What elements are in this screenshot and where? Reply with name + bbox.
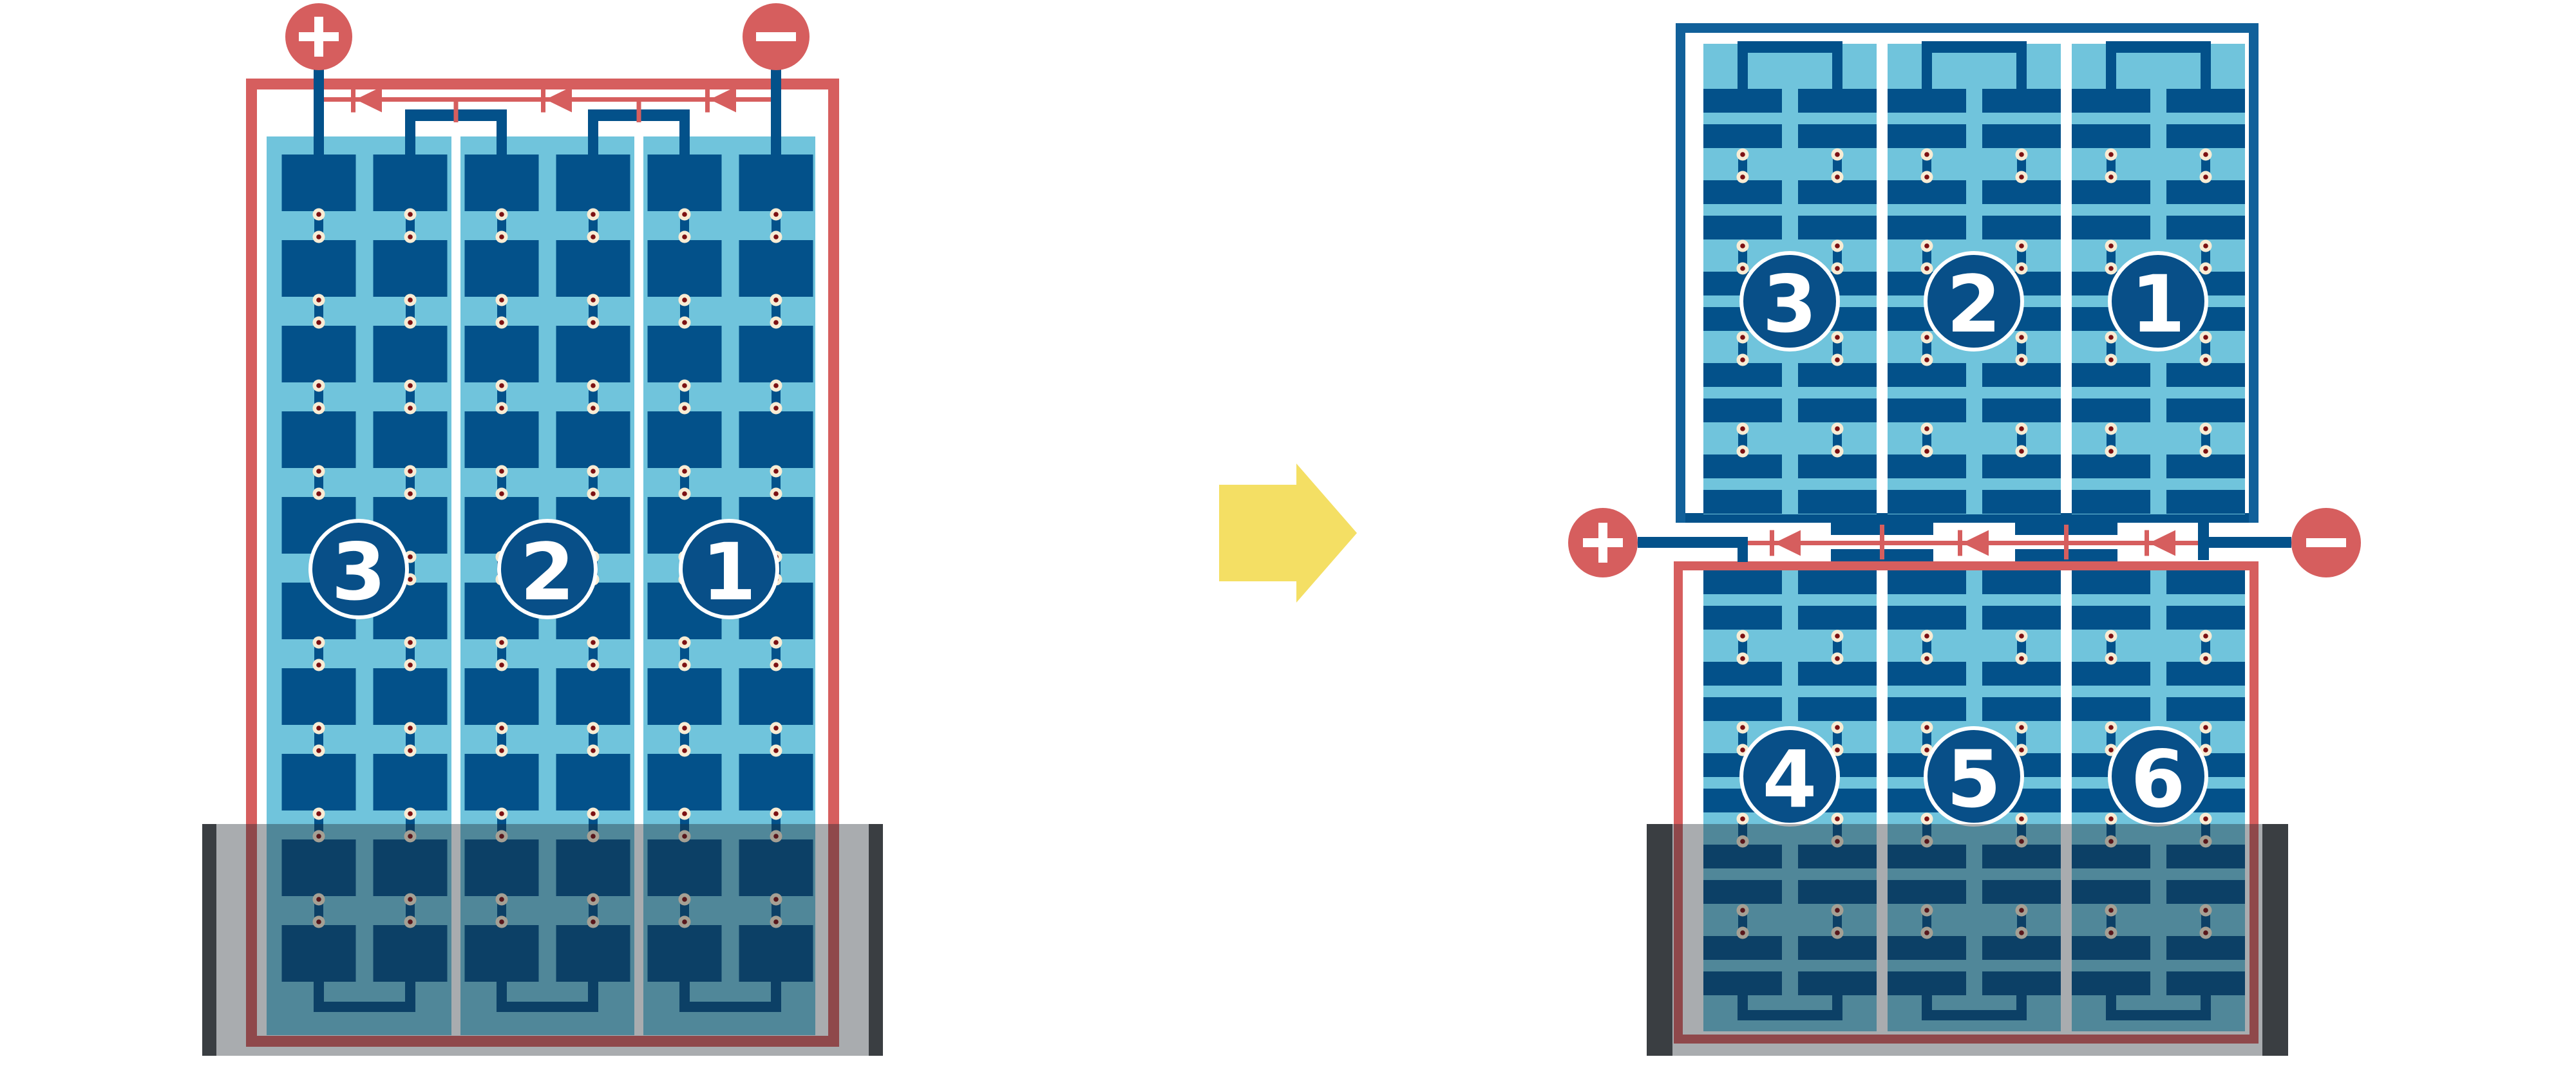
string-number-label: 3 — [332, 527, 386, 618]
half-cut-cell — [1888, 398, 1966, 422]
half-cut-cell — [1888, 216, 1966, 239]
solder-dot-core — [499, 662, 504, 668]
half-cut-cell — [1703, 89, 1782, 113]
half-cut-cell — [2166, 662, 2245, 686]
solar-cell — [648, 668, 722, 725]
half-cut-cell — [1703, 363, 1782, 387]
minus-icon — [2306, 538, 2346, 547]
solder-dot-core — [591, 406, 596, 411]
solder-dot-core — [2108, 335, 2114, 340]
solder-dot-core — [2203, 426, 2208, 431]
solder-dot-core — [591, 491, 596, 496]
half-cut-cell — [2166, 124, 2245, 148]
half-cut-cell — [1982, 124, 2061, 148]
solder-dot-core — [2203, 633, 2208, 639]
solder-dot-core — [1835, 747, 1840, 753]
solar-cell — [648, 411, 722, 468]
half-cut-cell — [1982, 662, 2061, 686]
solder-dot-core — [316, 383, 321, 388]
solder-dot-core — [2019, 816, 2024, 821]
solar-cell — [556, 754, 630, 810]
solder-dot-core — [499, 406, 504, 411]
string-top-connector — [2016, 53, 2027, 89]
solar-cell — [465, 326, 539, 382]
half-cut-cell — [1703, 454, 1782, 478]
half-cut-cell — [2072, 454, 2150, 478]
solder-dot-core — [499, 383, 504, 388]
solder-dot-core — [2019, 426, 2024, 431]
solder-dot-core — [499, 811, 504, 816]
solder-dot-core — [1924, 152, 1929, 157]
solar-cell — [374, 411, 448, 468]
positive-lead-wire — [314, 69, 324, 155]
solar-cell — [282, 411, 356, 468]
solder-dot-core — [2108, 266, 2114, 271]
solder-dot-core — [2203, 152, 2208, 157]
shadow-edge-bar — [2262, 824, 2288, 1056]
half-cut-cell — [1982, 180, 2061, 204]
string-top-connector — [2106, 41, 2211, 53]
solder-dot-core — [2019, 243, 2024, 248]
half-cut-cell — [1703, 124, 1782, 148]
string-number-label: 5 — [1947, 734, 2002, 825]
solder-dot-core — [773, 234, 779, 239]
solder-dot-core — [773, 469, 779, 474]
string-number-label: 4 — [1763, 734, 1817, 825]
solder-dot-core — [408, 640, 413, 645]
half-cut-cell — [2166, 363, 2245, 387]
solder-dot-core — [2019, 656, 2024, 661]
solder-dot-core — [2019, 335, 2024, 340]
solder-dot-core — [1835, 449, 1840, 454]
solder-dot-core — [2019, 747, 2024, 753]
bypass-diode-icon — [355, 87, 382, 113]
string-top-connector — [1738, 41, 1842, 53]
half-cut-cell — [1798, 570, 1877, 594]
diode-cathode-bar — [705, 87, 710, 113]
solder-dot-core — [2108, 725, 2114, 730]
solar-cell — [556, 240, 630, 297]
half-cut-cell — [1888, 570, 1966, 594]
half-cut-cell — [1703, 398, 1782, 422]
solar-cell — [374, 326, 448, 382]
solar-cell — [556, 326, 630, 382]
solder-dot-core — [1740, 426, 1745, 431]
half-cut-cell — [1703, 180, 1782, 204]
solder-dot-core — [591, 662, 596, 668]
half-cut-cell — [1703, 697, 1782, 721]
solder-dot-core — [408, 212, 413, 217]
half-cut-cell — [2166, 216, 2245, 239]
negative-lead-wire — [771, 69, 781, 155]
solder-dot-core — [316, 748, 321, 753]
half-cut-cell — [2166, 454, 2245, 478]
solder-dot-core — [316, 640, 321, 645]
solar-cell — [374, 754, 448, 810]
solder-dot-core — [2019, 725, 2024, 730]
diode-cathode-bar — [541, 87, 545, 113]
solder-dot-core — [2203, 747, 2208, 753]
half-cut-cell — [1798, 490, 1877, 514]
half-cut-cell — [1982, 570, 2061, 594]
solder-dot-core — [591, 748, 596, 753]
half-cut-cell — [2072, 216, 2150, 239]
half-cut-cell — [1798, 398, 1877, 422]
shadow-edge-bar — [1647, 824, 1672, 1056]
solar-cell — [465, 411, 539, 468]
solder-dot-core — [682, 491, 687, 496]
solder-dot-core — [1924, 335, 1929, 340]
solder-dot-core — [1924, 633, 1929, 639]
solar-cell — [282, 155, 356, 211]
solar-cell — [739, 668, 813, 725]
half-cut-cell — [1798, 662, 1877, 686]
solder-dot-core — [1924, 747, 1929, 753]
solder-dot-core — [2203, 243, 2208, 248]
half-cut-cell — [2072, 697, 2150, 721]
solder-dot-core — [408, 406, 413, 411]
solder-dot-core — [2108, 152, 2114, 157]
solder-dot-core — [408, 577, 413, 582]
solder-dot-core — [2108, 357, 2114, 362]
solar-cell — [739, 754, 813, 810]
half-cut-cell — [1888, 89, 1966, 113]
half-cut-cell — [2072, 124, 2150, 148]
half-cut-cell — [2072, 570, 2150, 594]
solar-cell — [648, 326, 722, 382]
solar-cell — [282, 754, 356, 810]
solder-dot-core — [499, 469, 504, 474]
solder-dot-core — [408, 748, 413, 753]
solder-dot-core — [2019, 174, 2024, 180]
solder-dot-core — [499, 640, 504, 645]
solder-dot-core — [316, 469, 321, 474]
solder-dot-core — [1924, 816, 1929, 821]
solder-dot-core — [682, 383, 687, 388]
half-cut-cell — [2166, 697, 2245, 721]
solder-dot-core — [1835, 152, 1840, 157]
pv-module-shading-diagram: 321 321 456 — [0, 0, 2576, 1068]
solder-dot-core — [499, 320, 504, 325]
solder-dot-core — [1835, 357, 1840, 362]
solder-dot-core — [682, 726, 687, 731]
solder-dot-core — [316, 320, 321, 325]
solder-dot-core — [773, 406, 779, 411]
solder-dot-core — [2108, 449, 2114, 454]
half-cut-cell — [2072, 180, 2150, 204]
solder-dot-core — [2019, 357, 2024, 362]
solder-dot-core — [2019, 266, 2024, 271]
negative-lead-wire — [2198, 523, 2209, 560]
solder-dot-core — [2203, 266, 2208, 271]
half-cut-cell — [2072, 606, 2150, 630]
half-cut-cell — [1703, 216, 1782, 239]
solder-dot-core — [316, 662, 321, 668]
solder-dot-core — [773, 491, 779, 496]
solder-dot-core — [2203, 725, 2208, 730]
solar-cell — [374, 155, 448, 211]
solder-dot-core — [1740, 335, 1745, 340]
solder-dot-core — [2203, 357, 2208, 362]
solder-dot-core — [316, 811, 321, 816]
half-cut-cell — [1982, 606, 2061, 630]
half-cut-cell — [2166, 180, 2245, 204]
half-cut-cell — [1798, 180, 1877, 204]
half-cut-cell — [1888, 180, 1966, 204]
solder-dot-core — [1740, 747, 1745, 753]
half-cut-cell — [2166, 89, 2245, 113]
half-cut-cell — [1982, 216, 2061, 239]
solder-dot-core — [2203, 656, 2208, 661]
solder-dot-core — [408, 297, 413, 303]
solder-dot-core — [408, 811, 413, 816]
solder-dot-core — [1924, 426, 1929, 431]
solder-dot-core — [591, 383, 596, 388]
solder-dot-core — [1740, 656, 1745, 661]
half-cut-cell — [1982, 454, 2061, 478]
string-top-connector — [2106, 53, 2116, 89]
solder-dot-core — [2203, 174, 2208, 180]
solder-dot-core — [408, 726, 413, 731]
half-cut-cell — [2072, 89, 2150, 113]
solder-dot-core — [2108, 656, 2114, 661]
half-cut-cell — [1888, 490, 1966, 514]
solder-dot-core — [1924, 656, 1929, 661]
solder-dot-core — [1740, 152, 1745, 157]
string-top-connector — [2201, 53, 2211, 89]
solder-dot-core — [2203, 335, 2208, 340]
solder-dot-core — [1835, 816, 1840, 821]
minus-icon — [756, 32, 796, 41]
solder-dot-core — [773, 297, 779, 303]
solder-dot-core — [682, 748, 687, 753]
plus-icon — [314, 17, 323, 57]
half-cut-cell — [1703, 662, 1782, 686]
shadow-overlay-left — [202, 824, 883, 1056]
solder-dot-core — [2108, 174, 2114, 180]
solar-cell — [556, 411, 630, 468]
positive-lead-wire — [1738, 548, 1748, 562]
arrow-right-icon — [1219, 485, 1296, 581]
solar-cell — [374, 668, 448, 725]
string-number-label: 1 — [2131, 259, 2186, 350]
solar-cell — [739, 326, 813, 382]
diode-cathode-bar — [351, 87, 355, 113]
solder-dot-core — [1740, 449, 1745, 454]
solder-dot-core — [408, 234, 413, 239]
solder-dot-core — [408, 469, 413, 474]
solar-cell — [556, 155, 630, 211]
solder-dot-core — [1740, 816, 1745, 821]
solder-dot-core — [2108, 816, 2114, 821]
bypass-diode-icon — [1774, 530, 1801, 556]
solar-cell — [739, 411, 813, 468]
diode-bus-tap — [454, 97, 459, 122]
bottom-busbar — [1685, 513, 2249, 523]
solder-dot-core — [1835, 633, 1840, 639]
transform-arrow — [1219, 464, 1357, 603]
string-number-label: 1 — [702, 527, 757, 618]
half-cut-cell — [1703, 490, 1782, 514]
solar-cell — [739, 155, 813, 211]
solder-dot-core — [1835, 656, 1840, 661]
negative-lead-wire — [2209, 537, 2291, 548]
solder-dot-core — [1740, 725, 1745, 730]
half-cut-cell — [1798, 454, 1877, 478]
string-top-connector — [1922, 41, 2027, 53]
string-top-connector — [1922, 53, 1932, 89]
solder-dot-core — [2019, 152, 2024, 157]
half-cut-cell — [2072, 398, 2150, 422]
solar-cell — [282, 240, 356, 297]
solder-dot-core — [1835, 174, 1840, 180]
solder-dot-core — [316, 212, 321, 217]
plus-icon — [1598, 523, 1607, 563]
solder-dot-core — [2108, 747, 2114, 753]
half-cut-cell — [1798, 216, 1877, 239]
solder-dot-core — [773, 811, 779, 816]
half-cut-cell — [1888, 697, 1966, 721]
string-top-connector — [1832, 53, 1842, 89]
half-cut-cell — [2072, 363, 2150, 387]
half-cut-cell — [1703, 606, 1782, 630]
half-cut-cell — [1982, 697, 2061, 721]
solder-dot-core — [773, 320, 779, 325]
solder-dot-core — [2108, 426, 2114, 431]
solder-dot-core — [316, 726, 321, 731]
half-cut-cell — [2166, 570, 2245, 594]
shadow-overlays — [202, 824, 2288, 1056]
solar-cell — [648, 754, 722, 810]
solder-dot-core — [316, 234, 321, 239]
solder-dot-core — [499, 212, 504, 217]
solder-dot-core — [591, 640, 596, 645]
bypass-diode-bus — [324, 87, 771, 123]
solar-cell — [739, 240, 813, 297]
solder-dot-core — [682, 640, 687, 645]
diagram-canvas: 321 321 456 — [0, 0, 2576, 1068]
half-cut-cell — [1798, 89, 1877, 113]
solder-dot-core — [1924, 357, 1929, 362]
solar-cell — [465, 155, 539, 211]
half-cut-cell — [2166, 606, 2245, 630]
solder-dot-core — [591, 811, 596, 816]
bypass-diode-icon — [545, 87, 572, 113]
solder-dot-core — [2108, 633, 2114, 639]
solder-dot-core — [682, 662, 687, 668]
solder-dot-core — [682, 297, 687, 303]
shadow-edge-bar — [869, 824, 883, 1056]
solder-dot-core — [2019, 633, 2024, 639]
solder-dot-core — [408, 662, 413, 668]
solder-dot-core — [499, 748, 504, 753]
shadow-edge-bar — [202, 824, 216, 1056]
solar-cell — [465, 240, 539, 297]
string-number-label: 2 — [520, 527, 575, 618]
solder-dot-core — [1924, 243, 1929, 248]
solder-dot-core — [1740, 633, 1745, 639]
solder-dot-core — [682, 234, 687, 239]
solder-dot-core — [1740, 174, 1745, 180]
solar-cell — [465, 754, 539, 810]
half-cut-cell — [1798, 697, 1877, 721]
shadow-overlay — [202, 824, 883, 1056]
solder-dot-core — [773, 726, 779, 731]
solder-dot-core — [1924, 725, 1929, 730]
half-cut-cell — [1888, 606, 1966, 630]
half-cut-cell — [1798, 363, 1877, 387]
half-cut-cell — [1798, 606, 1877, 630]
solder-dot-core — [591, 234, 596, 239]
half-cut-cell — [1982, 89, 2061, 113]
solder-dot-core — [1924, 266, 1929, 271]
half-cut-cell — [1888, 454, 1966, 478]
right-module-top-half: 321 — [1681, 28, 2254, 523]
solder-dot-core — [591, 212, 596, 217]
solder-dot-core — [499, 234, 504, 239]
solder-dot-core — [591, 297, 596, 303]
solder-dot-core — [773, 640, 779, 645]
solder-dot-core — [682, 212, 687, 217]
solder-dot-core — [408, 554, 413, 559]
half-cut-cell — [1982, 398, 2061, 422]
shadow-overlay — [1647, 824, 2288, 1056]
string-number-label: 6 — [2131, 734, 2186, 825]
solder-dot-core — [682, 320, 687, 325]
solder-dot-core — [2203, 449, 2208, 454]
solder-dot-core — [2019, 449, 2024, 454]
solder-dot-core — [682, 469, 687, 474]
solar-cell — [282, 326, 356, 382]
diode-cathode-bar — [1958, 530, 1962, 556]
solder-dot-core — [773, 662, 779, 668]
string-number-label: 3 — [1763, 259, 1817, 350]
diode-cathode-bar — [1770, 530, 1774, 556]
solder-dot-core — [499, 297, 504, 303]
solder-dot-core — [773, 383, 779, 388]
shadow-overlay-right — [1647, 824, 2288, 1056]
half-cut-cell — [1982, 490, 2061, 514]
half-cut-cell — [2072, 490, 2150, 514]
solder-dot-core — [1835, 426, 1840, 431]
solder-dot-core — [316, 406, 321, 411]
string-number-label: 2 — [1947, 259, 2002, 350]
diode-bus-tap — [637, 97, 641, 122]
solder-dot-core — [499, 491, 504, 496]
solder-dot-core — [316, 297, 321, 303]
half-cut-cell — [1982, 363, 2061, 387]
solder-dot-core — [408, 383, 413, 388]
solder-dot-core — [1835, 725, 1840, 730]
solder-dot-core — [499, 726, 504, 731]
bypass-diode-icon — [2149, 530, 2175, 556]
solder-dot-core — [1924, 174, 1929, 180]
solder-dot-core — [773, 212, 779, 217]
bypass-diode-icon — [1962, 530, 1989, 556]
solder-dot-core — [1835, 266, 1840, 271]
solder-dot-core — [773, 748, 779, 753]
half-cut-cell — [2072, 662, 2150, 686]
solder-dot-core — [682, 406, 687, 411]
solder-dot-core — [316, 491, 321, 496]
bypass-diode-icon — [710, 87, 736, 113]
solar-cell — [648, 155, 722, 211]
arrow-right-icon — [1296, 464, 1357, 603]
solder-dot-core — [1740, 357, 1745, 362]
half-cut-cell — [1888, 124, 1966, 148]
positive-lead-wire — [1638, 537, 1748, 548]
half-cut-cell — [1798, 124, 1877, 148]
